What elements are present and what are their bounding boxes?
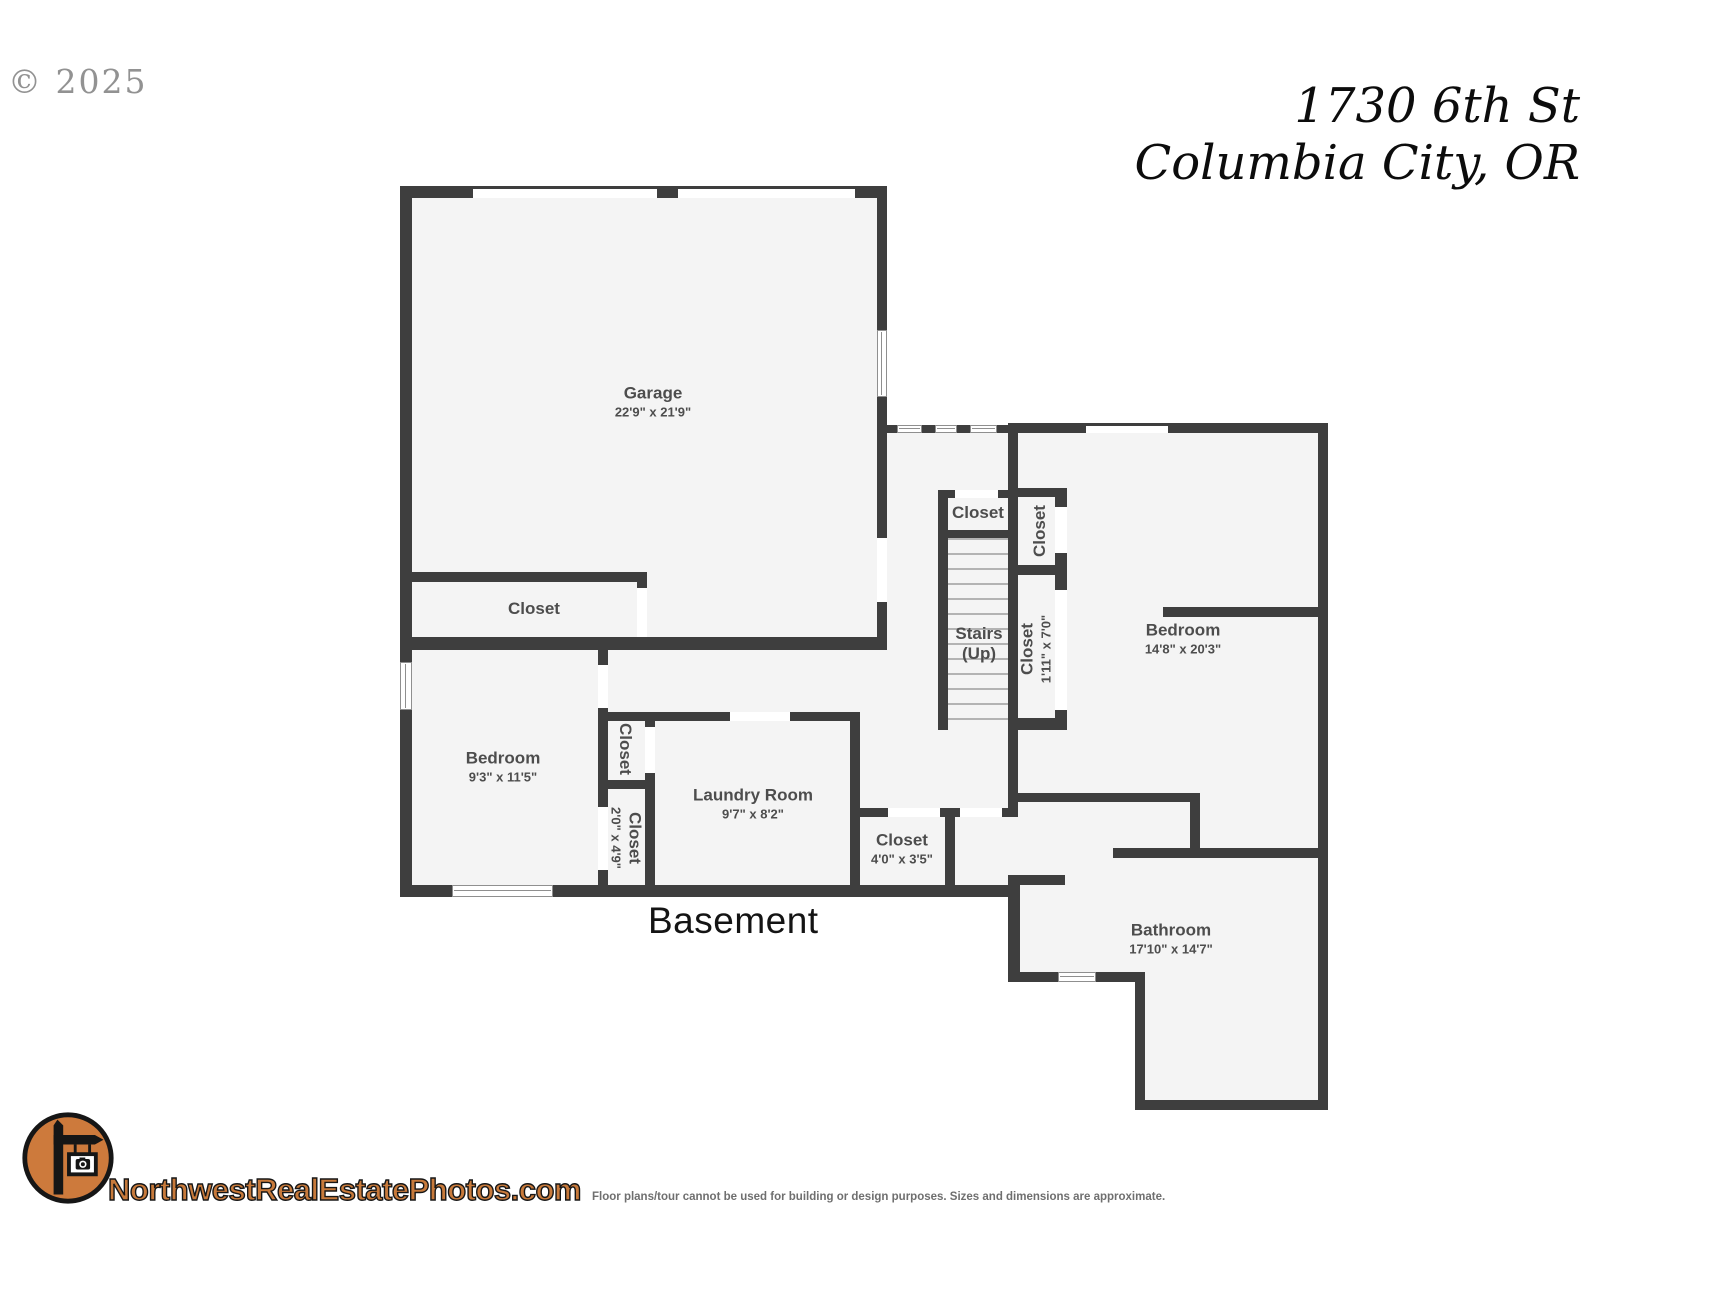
wall [598, 712, 730, 721]
footer: NorthwestRealEstatePhotos.com Floor plan… [0, 1090, 1728, 1250]
door-opening [598, 665, 608, 708]
room-label-bathroom: Bathroom17'10" x 14'7" [1129, 921, 1213, 958]
door-opening [955, 490, 998, 498]
wall [1008, 793, 1200, 802]
wall [1017, 565, 1067, 575]
wall [598, 780, 655, 789]
room-dimensions: 14'8" x 20'3" [1145, 641, 1221, 658]
room-dimensions: 9'3" x 11'5" [466, 769, 541, 786]
copyright-watermark: © 2025 [8, 62, 147, 101]
room-label-laundry-room: Laundry Room9'7" x 8'2" [693, 786, 813, 823]
floor-name-label: Basement [648, 900, 810, 942]
address-line1: 1730 6th St [1135, 78, 1580, 135]
room-label-closet-hall-lower: Closet2'0" x 4'9" [608, 807, 645, 869]
room-dimensions: 9'7" x 8'2" [693, 806, 813, 823]
room-name: Bedroom [466, 749, 541, 769]
property-address: 1730 6th St Columbia City, OR [1135, 78, 1580, 192]
room-label-closet-mid: Closet4'0" x 3'5" [871, 831, 933, 868]
window [970, 425, 997, 433]
room-name: Stairs [955, 624, 1002, 644]
disclaimer-text: Floor plans/tour cannot be used for buil… [592, 1191, 1165, 1203]
room-dimensions: 1'11" x 7'0" [1038, 615, 1055, 683]
room-label-closet-right-lower: Closet1'11" x 7'0" [1018, 615, 1055, 683]
wall-opening [473, 189, 657, 198]
door-opening [1055, 590, 1067, 710]
brand-logo-icon [20, 1108, 116, 1208]
room-name: Closet [625, 807, 645, 869]
room-dimensions: (Up) [955, 644, 1002, 664]
room-label-garage: Garage22'9" x 21'9" [615, 384, 691, 421]
door-opening [888, 808, 940, 817]
room-name: Closet [1018, 615, 1038, 683]
wall [850, 712, 860, 897]
wall-opening [1086, 426, 1168, 433]
room-label-stairs: Stairs(Up) [955, 624, 1002, 664]
wall [598, 647, 608, 665]
room-label-closet-stairs-top: Closet [952, 503, 1004, 523]
wall [1163, 607, 1328, 617]
wall-opening [678, 189, 855, 198]
room-name: Bedroom [1145, 621, 1221, 641]
wall [1008, 875, 1065, 885]
door-opening [598, 807, 608, 870]
window [400, 662, 412, 710]
wall [790, 712, 850, 721]
wall [1318, 423, 1328, 1110]
room-label-closet-hall-upper: Closet [615, 723, 635, 775]
room-label-closet-right-upper: Closet [1030, 505, 1050, 557]
wall [1008, 875, 1020, 982]
door-opening [730, 712, 790, 721]
wall [945, 817, 955, 887]
room-name: Closet [508, 599, 560, 619]
room-name: Bathroom [1129, 921, 1213, 941]
room-name: Garage [615, 384, 691, 404]
wall [1113, 848, 1328, 858]
room-dimensions: 17'10" x 14'7" [1129, 941, 1213, 958]
brand-name: NorthwestRealEstatePhotos.com [108, 1172, 581, 1208]
room-name: Closet [871, 831, 933, 851]
room-name: Closet [615, 723, 635, 775]
wall [1008, 423, 1328, 433]
wall [1008, 718, 1067, 730]
room-name: Closet [952, 503, 1004, 523]
room-label-bedroom-left: Bedroom9'3" x 11'5" [466, 749, 541, 786]
wall [400, 186, 412, 897]
room-name: Closet [1030, 505, 1050, 557]
room-dimensions: 22'9" x 21'9" [615, 404, 691, 421]
floorplan-canvas: © 2025 1730 6th St Columbia City, OR Gar… [0, 0, 1728, 1296]
room-name: Laundry Room [693, 786, 813, 806]
door-opening [960, 808, 1002, 817]
wall [1008, 425, 1018, 817]
room-dimensions: 4'0" x 3'5" [871, 851, 933, 868]
window [877, 330, 887, 397]
wall [938, 490, 948, 730]
window [452, 885, 553, 897]
room-label-bedroom-right: Bedroom14'8" x 20'3" [1145, 621, 1221, 658]
room-dimensions: 2'0" x 4'9" [608, 807, 625, 869]
wall [400, 572, 647, 582]
door-opening [877, 538, 887, 602]
wall [938, 530, 1017, 538]
door-opening [1055, 507, 1067, 553]
window [935, 425, 957, 433]
door-opening [645, 727, 655, 773]
address-line2: Columbia City, OR [1135, 135, 1580, 192]
window [897, 425, 922, 433]
room-label-closet-garage: Closet [508, 599, 560, 619]
window [1058, 972, 1096, 982]
door-opening [637, 588, 647, 637]
